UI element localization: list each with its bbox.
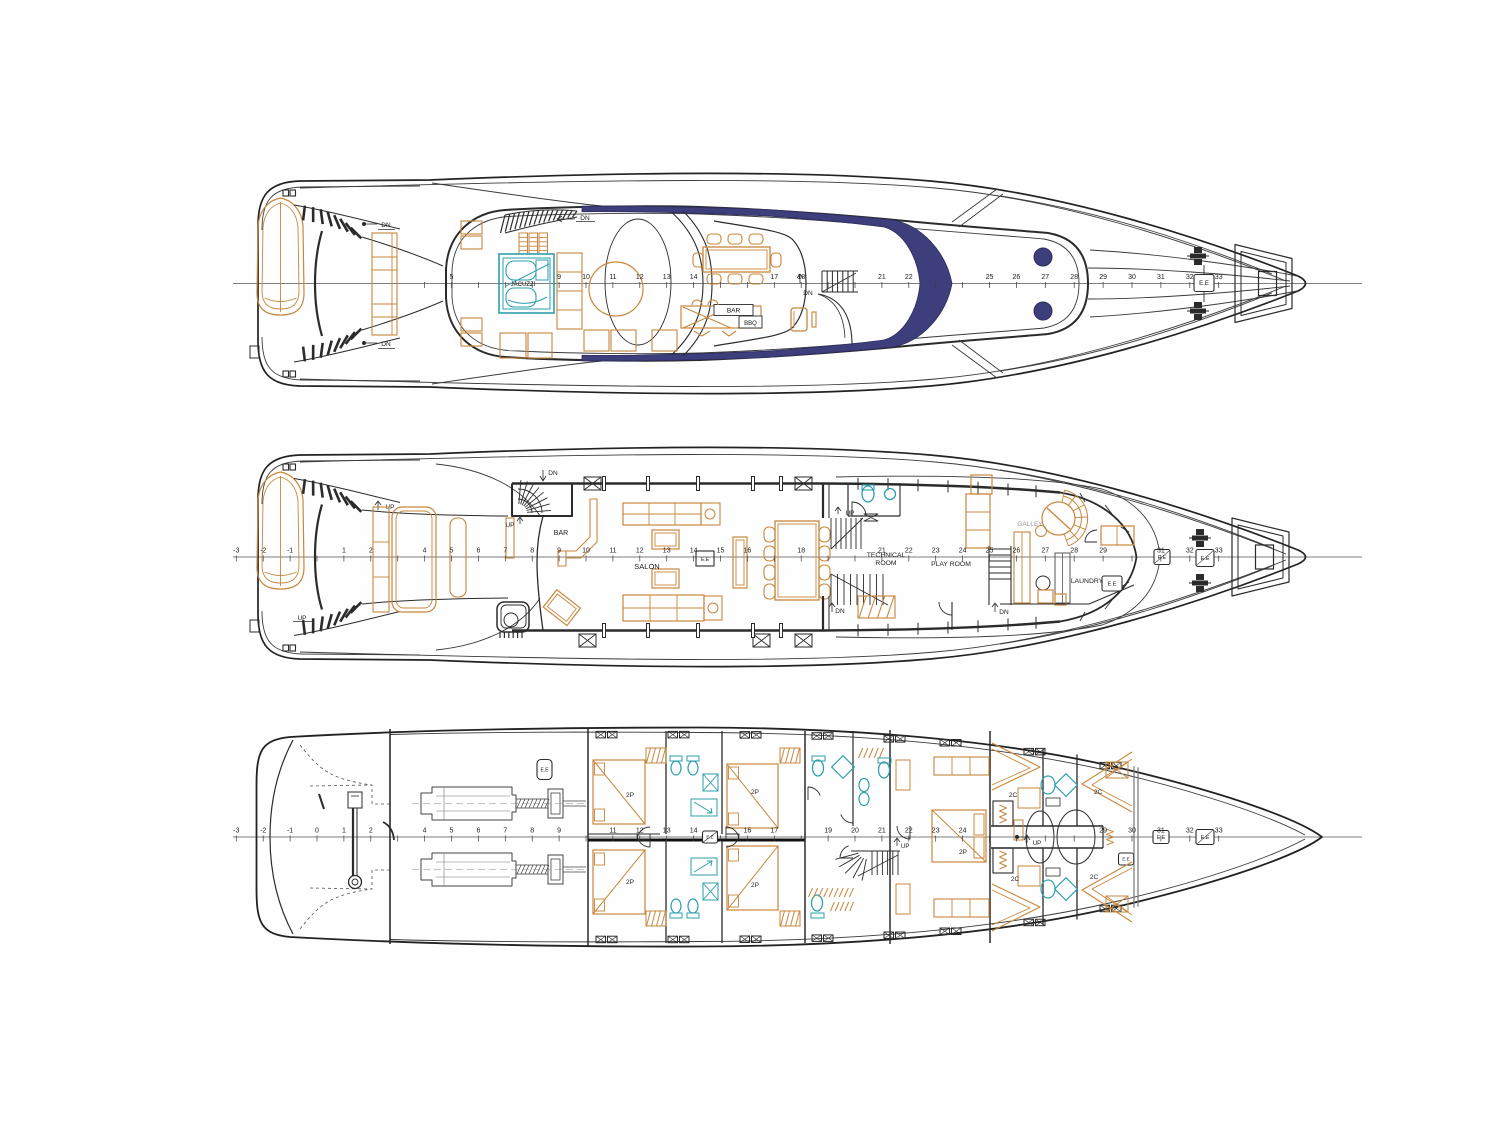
svg-text:21: 21 <box>878 548 886 555</box>
svg-text:15: 15 <box>717 548 725 555</box>
svg-text:23: 23 <box>932 548 940 555</box>
svg-text:DN: DN <box>381 222 391 229</box>
svg-text:22: 22 <box>905 548 913 555</box>
svg-text:2C: 2C <box>1090 874 1099 881</box>
svg-text:25: 25 <box>986 274 994 281</box>
svg-text:33: 33 <box>1215 274 1223 281</box>
svg-text:12: 12 <box>636 548 644 555</box>
svg-text:29: 29 <box>1099 274 1107 281</box>
svg-text:14: 14 <box>690 828 698 835</box>
svg-text:BBQ: BBQ <box>744 321 757 327</box>
svg-text:18: 18 <box>797 274 805 281</box>
svg-text:31: 31 <box>1157 828 1165 835</box>
svg-text:E.E: E.E <box>540 767 549 773</box>
svg-text:26: 26 <box>1013 548 1021 555</box>
svg-text:27: 27 <box>1041 548 1049 555</box>
svg-text:SALON: SALON <box>634 562 659 571</box>
svg-text:9: 9 <box>557 828 561 835</box>
svg-text:BAR: BAR <box>727 308 741 315</box>
svg-text:21: 21 <box>878 828 886 835</box>
svg-text:TECHNICAL: TECHNICAL <box>867 552 906 559</box>
svg-text:11: 11 <box>609 548 616 555</box>
svg-text:ROOM: ROOM <box>875 560 896 567</box>
svg-text:-2: -2 <box>260 828 266 835</box>
svg-text:DN: DN <box>381 341 391 348</box>
svg-text:DN: DN <box>835 608 845 615</box>
svg-text:2C: 2C <box>1009 792 1018 799</box>
svg-text:28: 28 <box>1070 274 1078 281</box>
svg-text:2C: 2C <box>1094 789 1103 796</box>
svg-text:22: 22 <box>905 274 913 281</box>
svg-text:30: 30 <box>1128 274 1136 281</box>
svg-text:LAUNDRY: LAUNDRY <box>1071 578 1104 585</box>
svg-text:28: 28 <box>1070 548 1078 555</box>
svg-text:25: 25 <box>986 548 994 555</box>
svg-text:29: 29 <box>1099 828 1107 835</box>
svg-text:13: 13 <box>663 274 671 281</box>
svg-text:18: 18 <box>797 548 805 555</box>
svg-text:5: 5 <box>450 828 454 835</box>
svg-text:29: 29 <box>1099 548 1107 555</box>
svg-text:33: 33 <box>1215 828 1223 835</box>
svg-text:4: 4 <box>423 828 427 835</box>
svg-text:GALLEY: GALLEY <box>1017 521 1043 528</box>
svg-text:BAR: BAR <box>554 530 568 537</box>
svg-text:E.E: E.E <box>1158 555 1167 561</box>
svg-text:2: 2 <box>369 548 373 555</box>
svg-text:9: 9 <box>557 274 561 281</box>
svg-text:2P: 2P <box>626 792 634 799</box>
svg-text:-3: -3 <box>233 548 239 555</box>
svg-text:E.E: E.E <box>1122 857 1129 862</box>
svg-text:11: 11 <box>609 828 616 835</box>
svg-text:-1: -1 <box>287 548 293 555</box>
svg-text:21: 21 <box>878 274 886 281</box>
svg-text:20: 20 <box>851 828 859 835</box>
svg-text:16: 16 <box>744 828 752 835</box>
svg-text:31: 31 <box>1157 548 1165 555</box>
svg-text:8: 8 <box>530 548 534 555</box>
svg-text:32: 32 <box>1186 274 1194 281</box>
svg-text:24: 24 <box>959 548 967 555</box>
svg-text:10: 10 <box>582 274 590 281</box>
svg-text:17: 17 <box>770 828 778 835</box>
svg-text:-1: -1 <box>287 828 293 835</box>
svg-text:0: 0 <box>315 828 319 835</box>
svg-text:E.E: E.E <box>1157 835 1166 841</box>
svg-text:13: 13 <box>663 548 671 555</box>
svg-text:1: 1 <box>342 828 346 835</box>
svg-text:11: 11 <box>609 274 616 281</box>
svg-text:31: 31 <box>1157 274 1165 281</box>
svg-text:32: 32 <box>1186 828 1194 835</box>
svg-text:32: 32 <box>1186 548 1194 555</box>
svg-text:UP: UP <box>297 615 306 622</box>
svg-text:9: 9 <box>557 548 561 555</box>
svg-text:23: 23 <box>932 828 940 835</box>
svg-text:27: 27 <box>1041 274 1049 281</box>
svg-text:6: 6 <box>476 828 480 835</box>
svg-text:DN: DN <box>803 290 813 297</box>
svg-text:7: 7 <box>503 548 507 555</box>
svg-text:12: 12 <box>636 828 644 835</box>
svg-text:2C: 2C <box>1011 876 1020 883</box>
svg-text:8: 8 <box>530 828 534 835</box>
svg-text:UP: UP <box>505 522 514 529</box>
svg-text:5: 5 <box>450 274 454 281</box>
svg-text:E.E: E.E <box>1199 281 1209 287</box>
svg-text:2P: 2P <box>626 879 634 886</box>
svg-text:22: 22 <box>905 828 913 835</box>
svg-text:33: 33 <box>1215 548 1223 555</box>
svg-text:14: 14 <box>690 274 698 281</box>
svg-text:2P: 2P <box>751 789 759 796</box>
svg-text:2P: 2P <box>959 849 967 856</box>
svg-text:24: 24 <box>959 828 967 835</box>
svg-text:12: 12 <box>636 274 644 281</box>
svg-text:19: 19 <box>824 828 832 835</box>
svg-text:-3: -3 <box>233 828 239 835</box>
svg-text:PLAY ROOM: PLAY ROOM <box>931 561 971 568</box>
svg-text:16: 16 <box>744 548 752 555</box>
svg-text:2: 2 <box>369 828 373 835</box>
svg-text:UP: UP <box>901 844 909 850</box>
svg-text:E.E: E.E <box>701 557 710 563</box>
svg-text:DN: DN <box>580 215 590 222</box>
svg-text:5: 5 <box>450 548 454 555</box>
svg-text:14: 14 <box>690 548 698 555</box>
svg-text:30: 30 <box>1128 828 1136 835</box>
svg-text:DN: DN <box>548 470 558 477</box>
svg-text:6: 6 <box>476 548 480 555</box>
svg-text:7: 7 <box>503 828 507 835</box>
svg-text:26: 26 <box>1013 274 1021 281</box>
svg-text:13: 13 <box>663 828 671 835</box>
svg-text:4: 4 <box>423 548 427 555</box>
svg-text:2P: 2P <box>751 882 759 889</box>
svg-text:1: 1 <box>342 548 346 555</box>
svg-text:E.E: E.E <box>1108 582 1117 588</box>
svg-text:DN: DN <box>999 609 1009 616</box>
svg-text:10: 10 <box>582 548 590 555</box>
svg-text:UP: UP <box>1033 841 1041 847</box>
svg-text:17: 17 <box>770 274 778 281</box>
svg-text:-2: -2 <box>260 548 266 555</box>
